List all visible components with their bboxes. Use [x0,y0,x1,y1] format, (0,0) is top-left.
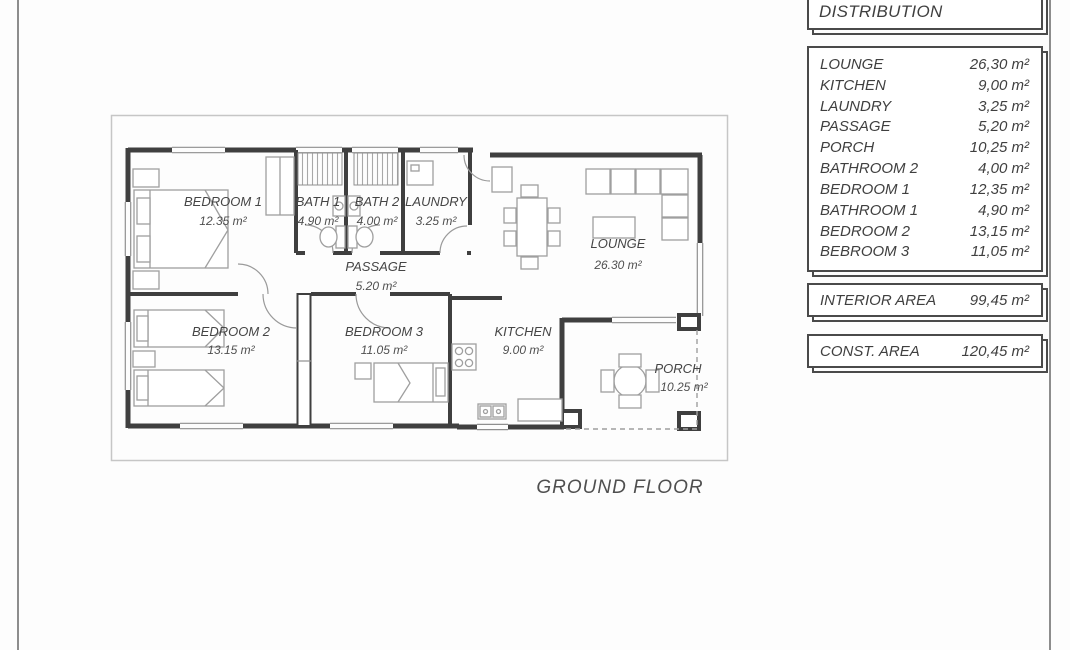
distribution-title-box: DISTRIBUTION [807,0,1043,30]
const-area-value: 120,45 m² [961,343,1029,360]
distribution-rooms-box: LOUNGE 26,30 m² KITCHEN 9,00 m² LAUNDRY … [807,46,1043,272]
distribution-row-label: BEBROOM 3 [820,242,909,263]
distribution-row-value: 11,05 m² [971,242,1029,263]
room-area: 5.20 m² [356,279,398,293]
distribution-row: LAUNDRY 3,25 m² [820,97,1029,118]
room-name: PASSAGE [345,259,407,274]
distribution-row-label: PORCH [820,138,874,159]
armchair [492,167,512,192]
distribution-row: LOUNGE 26,30 m² [820,55,1029,76]
distribution-row-value: 26,30 m² [970,55,1029,76]
distribution-row-value: 4,00 m² [978,159,1029,180]
distribution-row: PORCH 10,25 m² [820,138,1029,159]
distribution-row-value: 9,00 m² [978,76,1029,97]
room-name: BEDROOM 2 [192,324,271,339]
kitchen-counter [518,399,562,421]
distribution-rows: LOUNGE 26,30 m² KITCHEN 9,00 m² LAUNDRY … [807,46,1043,272]
room-label-porch: PORCH 10.25 m² [655,361,709,394]
shower-bath2 [354,153,398,185]
distribution-row-label: BEDROOM 1 [820,180,910,201]
interior-area-box: INTERIOR AREA 99,45 m² [807,283,1043,317]
distribution-row-label: BATHROOM 2 [820,159,918,180]
toilet-bath1 [320,226,345,248]
dining-table-set [504,185,560,269]
distribution-row: BEDROOM 2 13,15 m² [820,222,1029,243]
room-label-laundry: LAUNDRY 3.25 m² [405,194,468,228]
room-area: 3.25 m² [416,214,458,228]
ground-floor-title: GROUND FLOOR [470,477,770,499]
room-name: BATH 1 [296,194,341,209]
distribution-row: BEBROOM 3 11,05 m² [820,242,1029,263]
room-area: 12.35 m² [199,214,247,228]
room-name: PORCH [655,361,703,376]
distribution-row-value: 3,25 m² [978,97,1029,118]
distribution-row-value: 5,20 m² [978,117,1029,138]
room-label-kitchen: KITCHEN 9.00 m² [494,324,552,357]
distribution-row: BATHROOM 1 4,90 m² [820,201,1029,222]
shower-bath1 [298,153,342,185]
stove [452,344,476,370]
distribution-row-value: 12,35 m² [970,180,1029,201]
porch-table-set [601,354,659,408]
bedroom3-bed [355,363,448,402]
closet-divider [297,294,311,426]
distribution-row: BATHROOM 2 4,00 m² [820,159,1029,180]
room-area: 13.15 m² [207,343,255,357]
room-name: BEDROOM 3 [345,324,424,339]
bedroom1-double-bed [133,169,228,289]
room-area: 4.00 m² [357,214,399,228]
room-label-bedroom3: BEDROOM 3 11.05 m² [345,324,424,357]
washing-machine [407,161,433,185]
distribution-row: PASSAGE 5,20 m² [820,117,1029,138]
distribution-row: KITCHEN 9,00 m² [820,76,1029,97]
toilet-bath2 [348,226,373,248]
interior-area-label: INTERIOR AREA [820,292,936,309]
room-area: 9.00 m² [503,343,545,357]
room-area: 11.05 m² [361,343,408,357]
room-area: 4.90 m² [298,214,340,228]
room-label-passage: PASSAGE 5.20 m² [345,259,407,293]
distribution-row-label: BATHROOM 1 [820,201,918,222]
distribution-row-label: PASSAGE [820,117,891,138]
const-area-box: CONST. AREA 120,45 m² [807,334,1043,368]
distribution-row-label: BEDROOM 2 [820,222,910,243]
distribution-row-value: 10,25 m² [970,138,1029,159]
distribution-row-value: 13,15 m² [970,222,1029,243]
distribution-row-label: LAUNDRY [820,97,891,118]
room-area: 10.25 m² [660,380,708,394]
scanned-floor-plan-page: BEDROOM 1 12.35 m² BATH 1 4.90 m² BATH 2… [0,0,1070,650]
distribution-row: BEDROOM 1 12,35 m² [820,180,1029,201]
room-name: KITCHEN [494,324,552,339]
distribution-row-label: KITCHEN [820,76,886,97]
room-name: BEDROOM 1 [184,194,262,209]
room-name: LAUNDRY [405,194,468,209]
room-label-bath2: BATH 2 4.00 m² [355,194,400,228]
interior-area-value: 99,45 m² [970,292,1029,309]
coffee-table [593,217,635,238]
room-label-lounge: LOUNGE 26.30 m² [591,236,646,272]
room-area: 26.30 m² [593,258,642,272]
distribution-row-label: LOUNGE [820,55,883,76]
distribution-title: DISTRIBUTION [819,2,943,21]
distribution-row-value: 4,90 m² [978,201,1029,222]
room-name: LOUNGE [591,236,646,251]
bedroom1-wardrobe [266,157,294,215]
const-area-label: CONST. AREA [820,343,920,360]
kitchen-sink [478,404,506,419]
room-name: BATH 2 [355,194,400,209]
